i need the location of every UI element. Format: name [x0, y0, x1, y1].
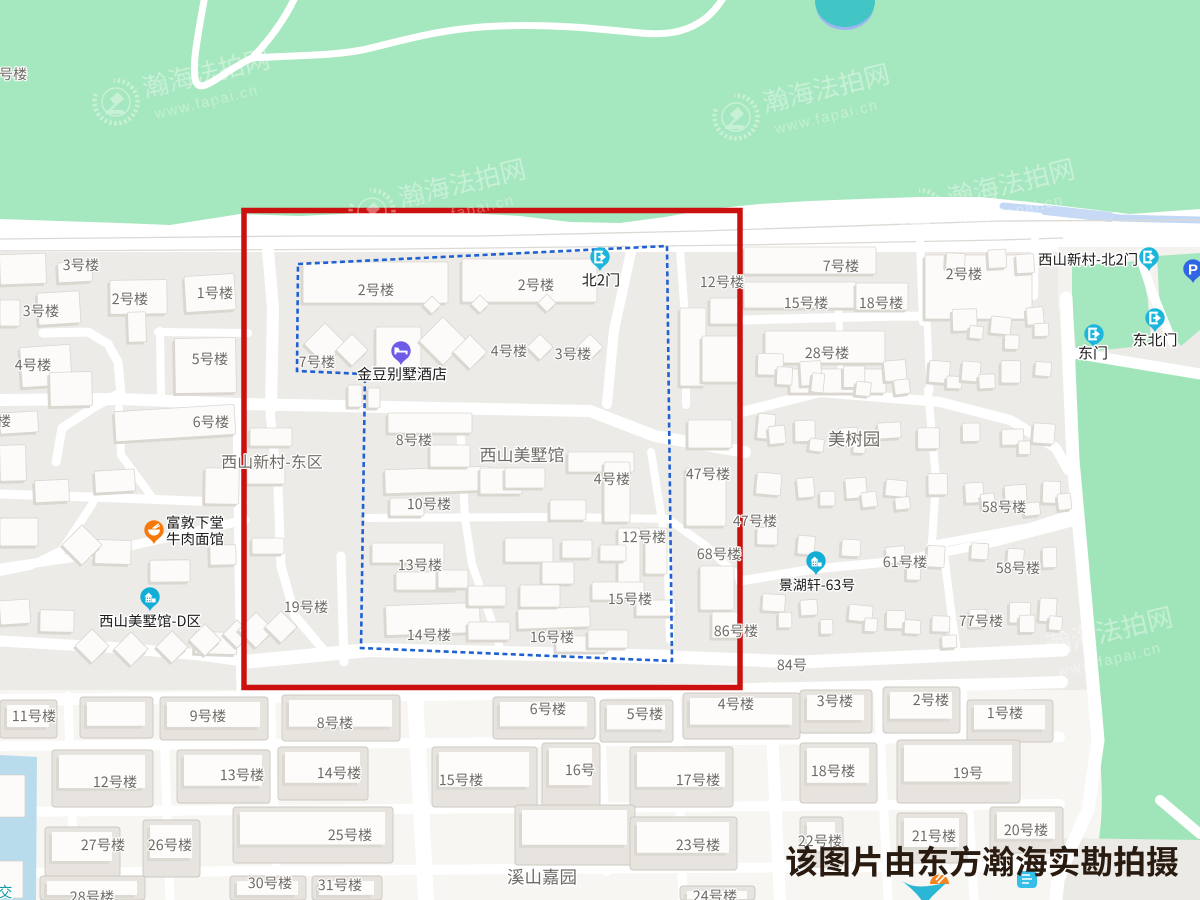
- svg-text:P: P: [1188, 261, 1198, 278]
